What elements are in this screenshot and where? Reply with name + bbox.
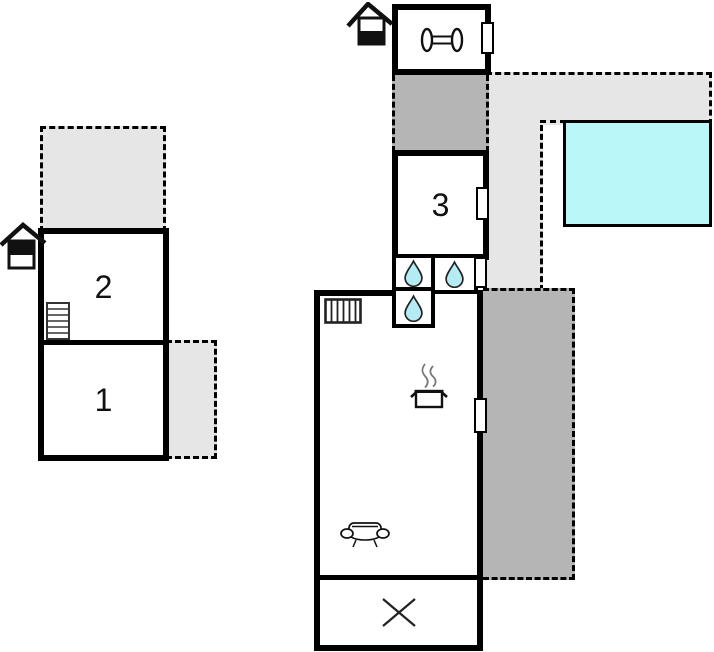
entrance-icon bbox=[0, 221, 48, 271]
door-marker-bathroom bbox=[474, 257, 487, 288]
building-main bbox=[314, 290, 483, 651]
terrace-side-strip bbox=[486, 125, 543, 291]
water-drop-icon bbox=[403, 259, 424, 287]
building-left: 2 1 bbox=[38, 228, 169, 461]
terrace-room1-side bbox=[166, 340, 217, 459]
door-marker-room3 bbox=[476, 187, 489, 220]
sofa-icon bbox=[340, 516, 390, 548]
swimming-pool bbox=[563, 120, 712, 227]
room-3: 3 bbox=[392, 150, 489, 260]
bathroom-cell bbox=[431, 254, 478, 294]
bathroom-cell bbox=[392, 287, 435, 328]
room-label-1: 1 bbox=[95, 384, 113, 416]
patio-dark-right bbox=[483, 288, 575, 580]
bathroom-cell bbox=[392, 254, 435, 291]
entrance-icon bbox=[346, 2, 396, 49]
radiator-icon bbox=[324, 298, 362, 324]
room-label-3: 3 bbox=[432, 189, 450, 221]
terrace-upper-left bbox=[40, 126, 166, 232]
door-marker-main bbox=[474, 398, 487, 433]
dark-zone-top bbox=[392, 75, 489, 152]
excluded-room bbox=[320, 580, 477, 645]
room-1: 1 bbox=[44, 345, 163, 455]
stairs-icon bbox=[46, 302, 70, 340]
dumbbell-icon bbox=[420, 27, 464, 53]
exterior-wall bbox=[314, 290, 398, 296]
terrace-top-band bbox=[486, 72, 712, 125]
water-drop-icon bbox=[444, 260, 465, 288]
x-mark-icon bbox=[381, 597, 417, 628]
gym-room bbox=[392, 4, 491, 75]
floor-plan: 2 1 3 bbox=[0, 0, 714, 652]
room-label-2: 2 bbox=[95, 271, 113, 303]
door-marker-gym bbox=[481, 22, 494, 54]
cooking-pot-icon bbox=[408, 362, 450, 411]
water-drop-icon bbox=[403, 294, 424, 322]
